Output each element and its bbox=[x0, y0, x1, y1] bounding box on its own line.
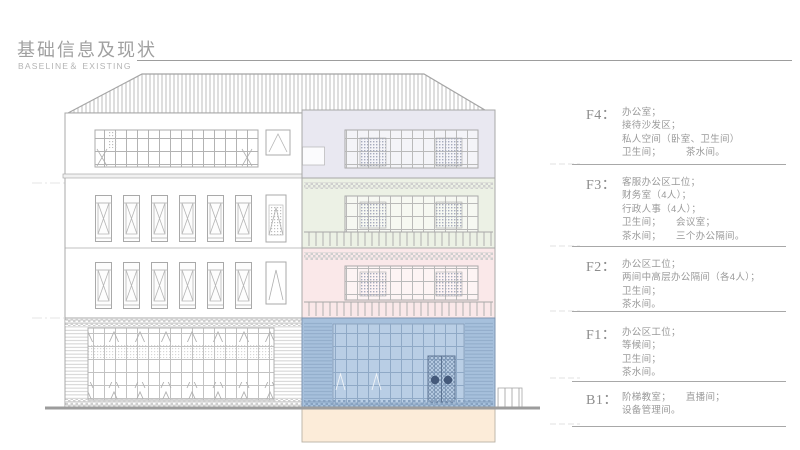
floor-description-line: 卫生间； 茶水间。 bbox=[622, 146, 740, 159]
floor-description-line: 财务室（4人）； bbox=[622, 189, 745, 202]
building-elevation-drawing bbox=[28, 60, 588, 450]
floor-annotation-f2: F2： 办公区工位； 两间中高层办公隔间（各4人）； 卫生间； 茶水间。 bbox=[586, 256, 760, 312]
floor-label-f3: F3： bbox=[586, 174, 622, 194]
floor-label-b1: B1： bbox=[586, 389, 622, 409]
floor-overlay-b1 bbox=[302, 408, 495, 442]
page-title: 基础信息及现状 bbox=[17, 36, 157, 62]
floor-description-line: 办公区工位； bbox=[622, 258, 760, 271]
floor-description-line: 两间中高层办公隔间（各4人）； bbox=[622, 271, 760, 284]
floor-description-line: 办公区工位； bbox=[622, 326, 681, 339]
annotation-divider bbox=[572, 164, 786, 165]
annotation-divider bbox=[572, 311, 786, 312]
floor-label-f1: F1： bbox=[586, 324, 622, 344]
floor-annotation-f4: F4： 办公室； 接待沙发区； 私人空间（卧室、卫生间） 卫生间； 茶水间。 bbox=[586, 104, 740, 160]
floor-description-line: 卫生间； bbox=[622, 285, 760, 298]
floor-description-line: 阶梯教室； 直播间； bbox=[622, 391, 725, 404]
floor-overlay-f2 bbox=[302, 248, 495, 318]
floor-annotation-f1: F1： 办公区工位； 等候间； 卫生间； 茶水间。 bbox=[586, 324, 681, 380]
floor-description-line: 接待沙发区； bbox=[622, 119, 740, 132]
floor-description-line: 设备管理间。 bbox=[622, 404, 725, 417]
floor-label-f2: F2： bbox=[586, 256, 622, 276]
floor-description-line: 私人空间（卧室、卫生间） bbox=[622, 133, 740, 146]
floor-annotation-b1: B1： 阶梯教室； 直播间； 设备管理间。 bbox=[586, 389, 725, 418]
entrance-door bbox=[428, 356, 455, 402]
slide: 基础信息及现状 BASELINE＆ EXISTING bbox=[0, 0, 800, 450]
floor-overlay-f4 bbox=[302, 110, 495, 178]
annotation-divider bbox=[572, 426, 786, 427]
floor-description-line: 茶水间； 三个办公隔间。 bbox=[622, 230, 745, 243]
floor-label-f4: F4： bbox=[586, 104, 622, 124]
floor-description-line: 客服办公区工位； bbox=[622, 176, 745, 189]
floor-description-line: 茶水间。 bbox=[622, 366, 681, 379]
floor-description-line: 卫生间； bbox=[622, 353, 681, 366]
floor-description-line: 等候间； bbox=[622, 339, 681, 352]
left-facade bbox=[63, 113, 304, 408]
floor-annotations: F4： 办公室； 接待沙发区； 私人空间（卧室、卫生间） 卫生间； 茶水间。 F… bbox=[572, 0, 794, 450]
annotation-divider bbox=[572, 381, 786, 382]
floor-description-line: 办公室； bbox=[622, 106, 740, 119]
floor-annotation-f3: F3： 客服办公区工位； 财务室（4人）； 行政人事（4人）； 卫生间； 会议室… bbox=[586, 174, 745, 243]
floor-overlay-f1 bbox=[302, 318, 495, 408]
floor-description-line: 卫生间； 会议室； bbox=[622, 216, 745, 229]
floor-description-line: 行政人事（4人）； bbox=[622, 203, 745, 216]
annotation-divider bbox=[572, 246, 786, 247]
roof-hatch bbox=[68, 74, 490, 113]
floor-description-line: 茶水间。 bbox=[622, 298, 760, 311]
floor-overlay-f3 bbox=[302, 178, 495, 248]
